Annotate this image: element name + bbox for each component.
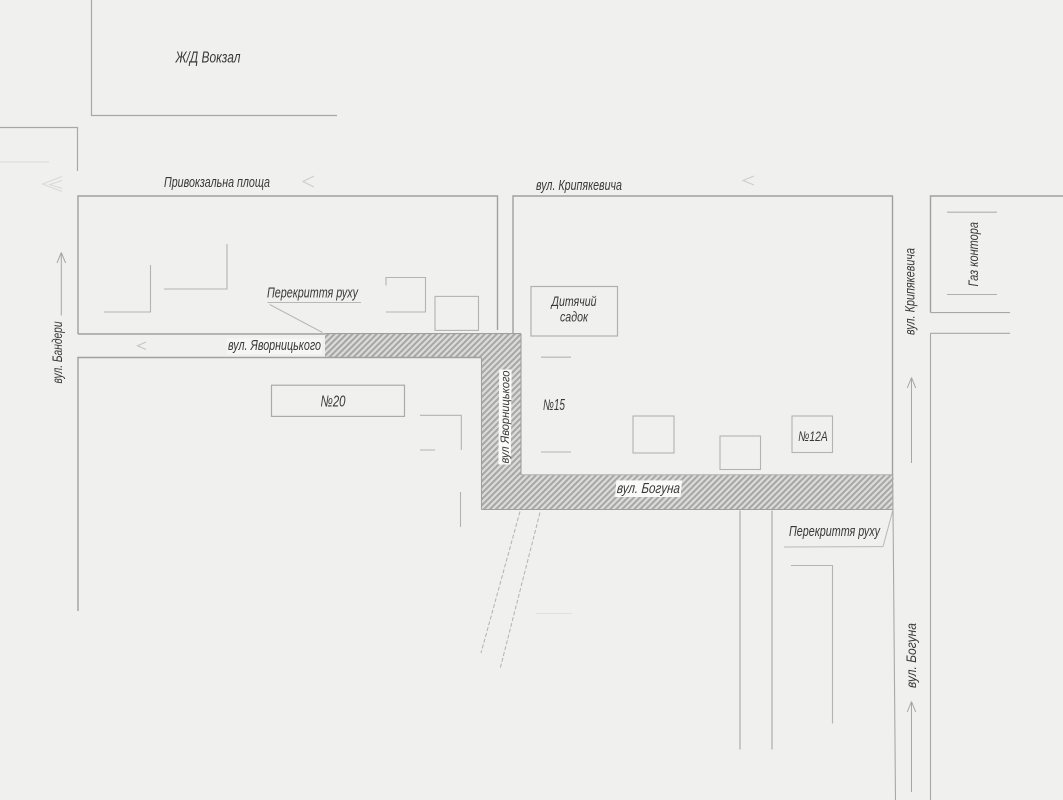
svg-text:Газ контора: Газ контора <box>966 222 981 287</box>
svg-text:Дитячий: Дитячий <box>550 293 597 309</box>
svg-text:вул. Богуна: вул. Богуна <box>616 481 680 497</box>
svg-text:№15: №15 <box>543 397 565 414</box>
svg-text:№20: №20 <box>321 394 346 411</box>
svg-text:садок: садок <box>560 309 589 325</box>
svg-text:вул Яворницького: вул Яворницького <box>498 370 513 463</box>
svg-text:вул. Богуна: вул. Богуна <box>904 623 919 688</box>
svg-text:вул. Крипякевича: вул. Крипякевича <box>902 248 917 335</box>
svg-text:Ж/Д Вокзал: Ж/Д Вокзал <box>175 50 241 67</box>
svg-text:вул. Крипякевича: вул. Крипякевича <box>536 178 622 194</box>
svg-text:Перекриття руху: Перекриття руху <box>267 286 359 302</box>
svg-text:Привокзальна площа: Привокзальна площа <box>164 175 270 191</box>
svg-text:№12А: №12А <box>798 428 828 444</box>
svg-text:Перекриття руху: Перекриття руху <box>789 524 881 540</box>
svg-text:вул. Бандери: вул. Бандери <box>50 321 65 383</box>
svg-text:вул. Яворницького: вул. Яворницького <box>228 338 321 354</box>
